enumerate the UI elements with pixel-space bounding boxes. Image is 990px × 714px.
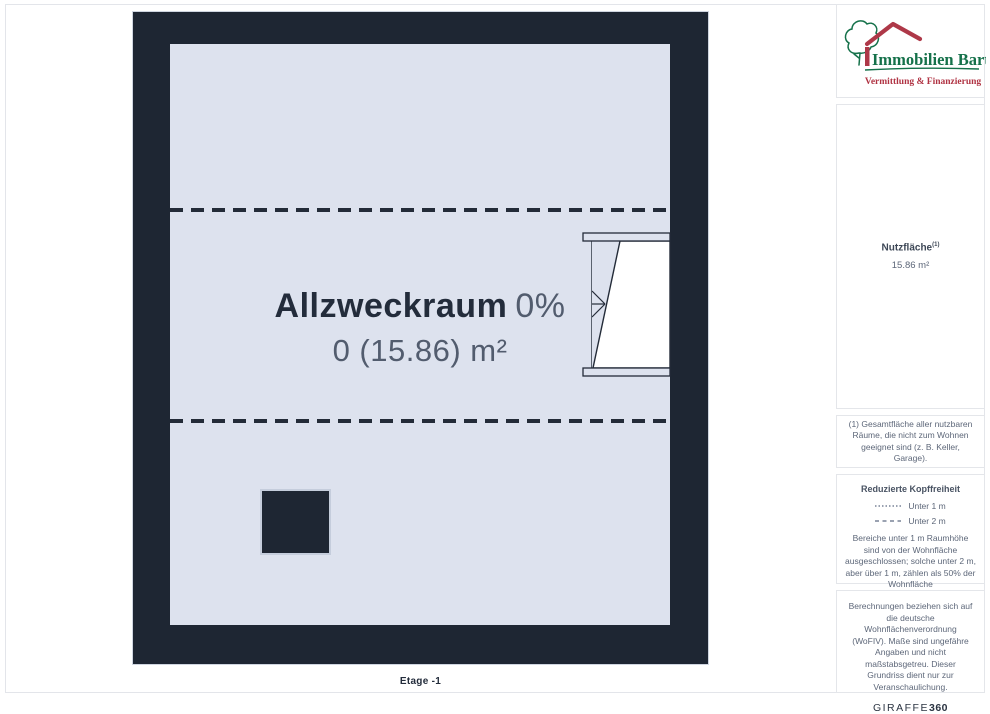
dashed-line-icon [875,520,901,522]
sill-top [583,233,670,241]
footnote-text: (1) Gesamtfläche aller nutzbaren Räume, … [837,419,984,465]
legend-item-under-1m: Unter 1 m [837,501,984,511]
room-living-percent: 0% [515,287,565,325]
legend-title: Reduzierte Kopffreiheit [837,484,984,494]
stair-window-symbol [578,228,674,380]
giraffe360-brand: GIRAFFE360 [837,702,984,714]
area-label-text: Nutzfläche [882,242,933,253]
logo-tagline: Vermittlung & Finanzierung [865,77,982,87]
area-label-superscript: (1) [932,242,939,248]
headroom-dashed-line-top [170,208,670,212]
area-summary-card: Nutzfläche(1) 15.86 m² [836,104,985,409]
door-post-icon [865,47,870,66]
legend-note: Bereiche unter 1 m Raumhöhe sind von der… [837,531,984,591]
chimney-pillar [260,489,331,555]
brand-number: 360 [929,702,948,714]
headroom-legend-card: Reduzierte Kopffreiheit Unter 1 m Unter … [836,474,985,584]
logo-name: Immobilien Bart [872,50,986,69]
disclaimer-text: Berechnungen beziehen sich auf die deuts… [837,601,984,693]
disclaimer-card: Berechnungen beziehen sich auf die deuts… [836,590,985,693]
area-label: Nutzfläche(1) [882,242,940,253]
legend-item-under-2m: Unter 2 m [837,516,984,526]
floor-caption: Etage -1 [133,676,708,687]
headroom-dashed-line-bottom [170,419,670,423]
dotted-line-icon [875,505,901,507]
sill-bottom [583,368,670,376]
roof-icon [867,24,920,44]
immobilien-bart-logo: Immobilien Bart Vermittlung & Finanzieru… [837,5,986,99]
footnote-card: (1) Gesamtfläche aller nutzbaren Räume, … [836,415,985,468]
legend-item-label: Unter 2 m [908,516,945,526]
legend-item-label: Unter 1 m [908,501,945,511]
area-value: 15.86 m² [892,260,930,271]
logo-card: Immobilien Bart Vermittlung & Finanzieru… [836,4,985,98]
brand-word: GIRAFFE [873,702,929,714]
room-name: Allzweckraum [275,287,508,325]
